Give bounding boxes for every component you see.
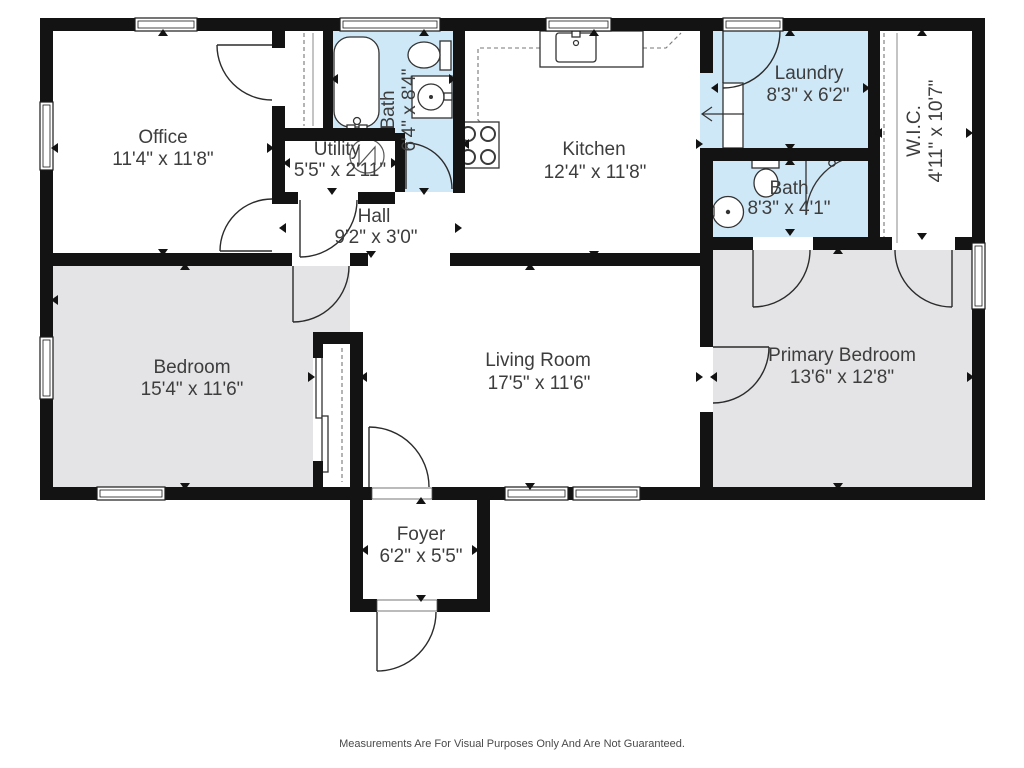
room-dims-hall: 9'2" x 3'0" (334, 227, 417, 248)
room-dims-bath: 6'4" x 8'4" (399, 68, 420, 151)
entry-door (377, 612, 436, 671)
room-dims-wic: 4'11" x 10'7" (926, 80, 947, 183)
room-label-bath: Bath (378, 90, 399, 129)
window (97, 487, 165, 500)
floor-plan-drawing: Office 11'4" x 11'8" Utility 5'5" x 2'11… (0, 0, 1024, 768)
window (340, 18, 440, 31)
room-dims-primary: 13'6" x 12'8" (790, 367, 894, 388)
entry-threshold (377, 600, 437, 611)
room-dims-utility: 5'5" x 2'11" (294, 160, 386, 181)
window (546, 18, 611, 31)
toilet-icon (408, 41, 451, 70)
window (505, 487, 568, 500)
window (972, 243, 985, 309)
kitchen-counter-dashed-edge (643, 33, 681, 48)
window (40, 102, 53, 170)
foyer-threshold (372, 488, 432, 499)
room-label-kitchen: Kitchen (562, 139, 625, 160)
office-hall-door (220, 199, 272, 251)
room-label-utility: Utility (314, 139, 361, 160)
floor-plan-page: Office 11'4" x 11'8" Utility 5'5" x 2'11… (0, 0, 1024, 768)
room-dims-bath2: 8'3" x 4'1" (747, 198, 830, 219)
room-dims-bedroom: 15'4" x 11'6" (141, 379, 244, 400)
room-dims-office: 11'4" x 11'8" (112, 149, 213, 170)
window (723, 18, 783, 31)
disclaimer-text: Measurements Are For Visual Purposes Onl… (339, 738, 685, 750)
room-dims-living: 17'5" x 11'6" (488, 373, 591, 394)
room-dims-foyer: 6'2" x 5'5" (379, 546, 462, 567)
room-dims-laundry: 8'3" x 6'2" (766, 85, 849, 106)
room-label-bedroom: Bedroom (153, 357, 230, 378)
room-label-laundry: Laundry (775, 63, 844, 84)
living-room-door (369, 427, 429, 487)
room-dims-kitchen: 12'4" x 11'8" (544, 162, 647, 183)
window (135, 18, 197, 31)
sliding-door-panels (316, 356, 328, 472)
office-door (217, 45, 272, 100)
window (40, 337, 53, 399)
room-label-wic: W.I.C. (904, 105, 925, 157)
laundry-door-panel (723, 83, 743, 148)
room-label-hall: Hall (358, 206, 391, 227)
room-label-living: Living Room (485, 350, 591, 371)
bathtub-icon (334, 37, 379, 131)
room-label-primary: Primary Bedroom (768, 345, 916, 366)
room-label-foyer: Foyer (397, 524, 446, 545)
window (573, 487, 640, 500)
room-label-bath2: Bath (769, 178, 808, 199)
room-label-office: Office (138, 127, 187, 148)
